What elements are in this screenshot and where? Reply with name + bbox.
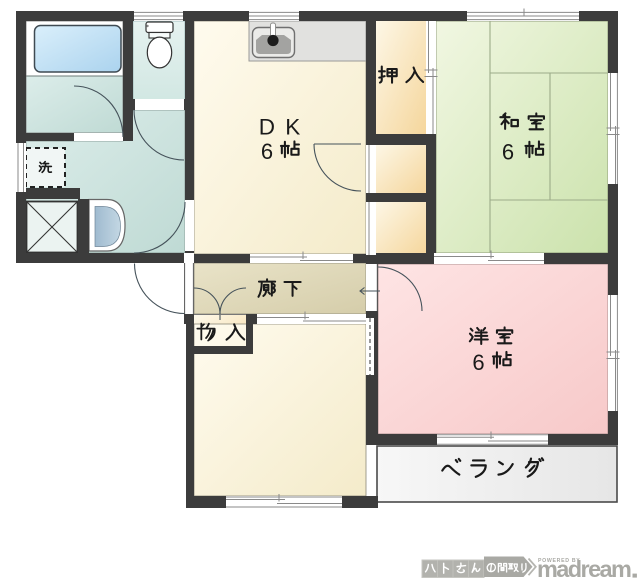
svg-text:6: 6 <box>472 350 484 375</box>
svg-text:6: 6 <box>261 139 273 164</box>
svg-text:madream: madream <box>537 556 631 582</box>
svg-text:D K: D K <box>259 115 303 140</box>
svg-text:6: 6 <box>502 140 514 165</box>
